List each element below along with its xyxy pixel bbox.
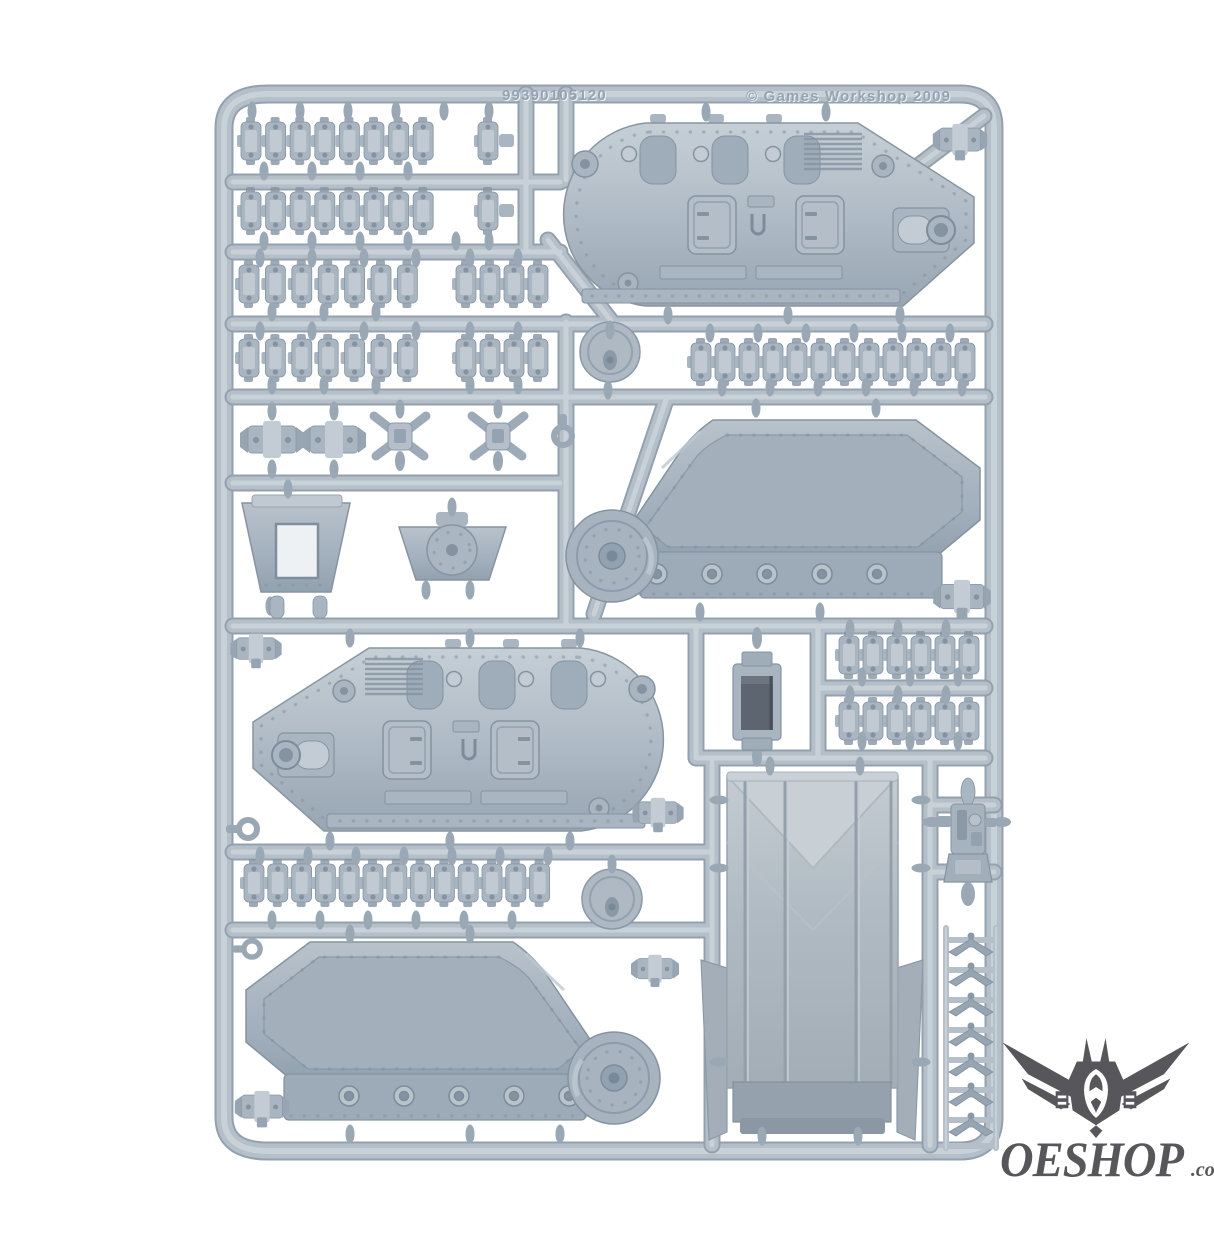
- assault-ramp-door: [701, 772, 923, 1140]
- oeshop-knight-logo: [1000, 1036, 1192, 1138]
- brand-text: OESHOP: [1000, 1134, 1183, 1184]
- track-link-strip: [452, 334, 548, 382]
- oeshop-wordmark: OESHOP.co.uk: [1000, 1134, 1212, 1184]
- vision-block-housing: [733, 627, 781, 767]
- single-track-link: [474, 187, 514, 235]
- pintle-clamp: [933, 580, 991, 619]
- track-link-strip: [240, 859, 550, 907]
- pintle-clamp: [230, 634, 281, 668]
- mounting-bracket: [240, 421, 304, 458]
- hull-side-panel-middle: [253, 639, 663, 831]
- round-hatch-disc: [582, 869, 642, 929]
- track-link-strip: [237, 187, 433, 235]
- front-glacis-plate: [242, 495, 350, 592]
- pintle-clamp: [235, 1091, 289, 1128]
- headlamp-cluster: [374, 416, 426, 471]
- single-track-link: [474, 117, 514, 165]
- track-guard-panel-bottom: [246, 942, 660, 1124]
- mounting-bracket: [302, 421, 366, 458]
- towing-hook: [232, 941, 260, 957]
- tld-text: .co.uk: [1191, 1159, 1214, 1181]
- part-code-emboss: 99390105120: [502, 87, 607, 104]
- track-link-strip: [235, 260, 417, 308]
- small-peg: [270, 596, 327, 618]
- track-link-strip: [687, 338, 975, 386]
- copyright-emboss: © Games Workshop 2009: [746, 88, 951, 105]
- track-link-strip: [452, 260, 548, 308]
- product-image[interactable]: 99390105120 99390105120 © Games Workshop…: [0, 0, 1214, 1253]
- track-link-strip: [235, 334, 417, 382]
- dome-plate: [399, 512, 506, 580]
- headlamp-cluster: [472, 416, 524, 471]
- track-link-strip: [237, 117, 433, 165]
- pintle-clamp: [631, 955, 679, 987]
- oeshop-watermark: OESHOP.co.uk: [1000, 1036, 1212, 1248]
- hull-side-panel-top: [564, 114, 974, 306]
